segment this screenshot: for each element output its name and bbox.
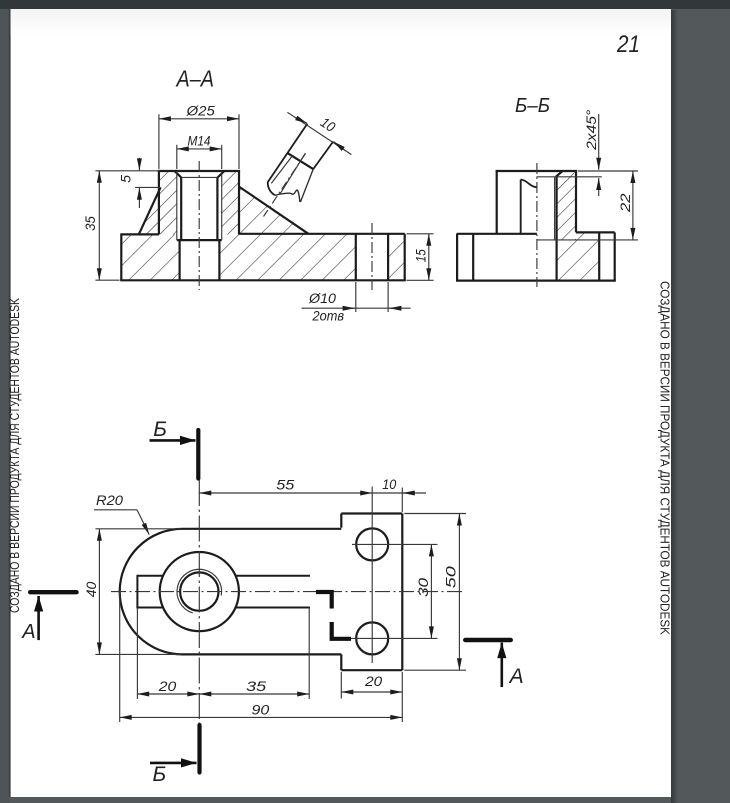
svg-text:Б: Б xyxy=(153,763,167,786)
svg-text:55: 55 xyxy=(276,478,294,494)
svg-text:А–А: А–А xyxy=(175,65,214,91)
svg-text:35: 35 xyxy=(83,216,99,231)
svg-text:40: 40 xyxy=(84,582,100,598)
svg-text:50: 50 xyxy=(444,566,460,588)
svg-text:СОЗДАНО В ВЕРСИИ ПРОДУКТА ДЛЯ: СОЗДАНО В ВЕРСИИ ПРОДУКТА ДЛЯ СТУДЕНТОВ … xyxy=(657,281,671,636)
svg-text:А: А xyxy=(21,621,35,643)
svg-text:35: 35 xyxy=(246,679,266,695)
svg-text:А: А xyxy=(508,665,524,688)
svg-text:Б: Б xyxy=(153,418,167,441)
svg-text:20: 20 xyxy=(158,679,177,695)
svg-text:M14: M14 xyxy=(188,133,211,149)
svg-text:5: 5 xyxy=(119,175,135,183)
svg-text:2отв: 2отв xyxy=(312,309,344,325)
svg-text:30: 30 xyxy=(416,578,432,597)
svg-text:2x45°: 2x45° xyxy=(584,109,600,150)
svg-text:20: 20 xyxy=(364,674,382,690)
svg-text:90: 90 xyxy=(252,702,270,718)
svg-text:Б–Б: Б–Б xyxy=(515,95,550,117)
svg-text:22: 22 xyxy=(618,193,634,213)
svg-text:10: 10 xyxy=(382,477,396,493)
svg-text:Ø25: Ø25 xyxy=(186,104,215,120)
svg-text:R20: R20 xyxy=(96,493,123,509)
svg-text:Ø10: Ø10 xyxy=(308,291,336,307)
svg-text:21: 21 xyxy=(616,31,640,58)
svg-text:15: 15 xyxy=(414,249,430,262)
svg-text:СОЗДАНО В ВЕРСИИ ПРОДУКТА ДЛЯ: СОЗДАНО В ВЕРСИИ ПРОДУКТА ДЛЯ СТУДЕНТОВ … xyxy=(8,297,22,613)
